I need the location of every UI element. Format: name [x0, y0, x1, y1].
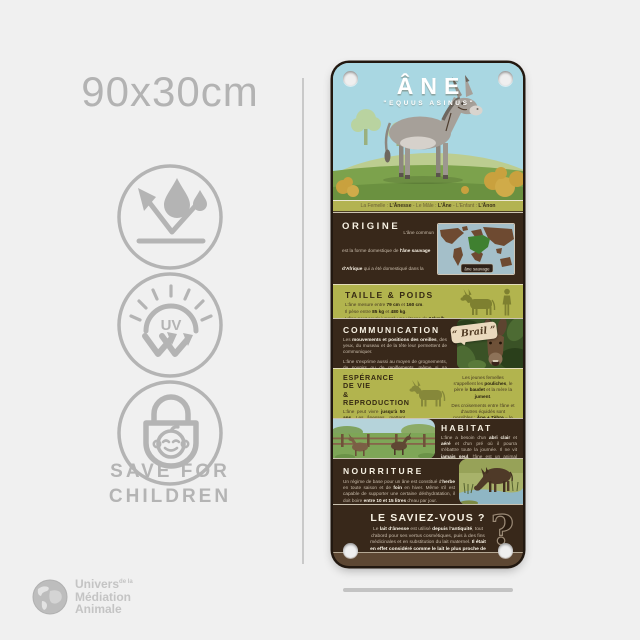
panel-title: ÂNE	[333, 73, 523, 100]
donkey-silhouette	[461, 289, 495, 315]
esperance-heading: ESPÉRANCE DE VIE & REPRODUCTION	[343, 374, 405, 407]
uv-icon-label: UV	[161, 317, 182, 334]
habitat-body: L'âne a besoin d'un abri clair et aéré e…	[441, 435, 517, 458]
size-label: 90x30cm	[40, 68, 300, 116]
esperance-right-p2: Des croisements entre l'âne et d'autres …	[451, 403, 515, 418]
header-scene: ÂNE "EQUUS ASINUS"	[333, 63, 523, 200]
panel-subtitle: "EQUUS ASINUS"	[333, 100, 523, 107]
communication-p2: L'âne s'exprime aussi au moyen de grogne…	[343, 359, 447, 368]
section-origine: ORIGINE L'âne commun est la forme domest…	[333, 212, 523, 284]
mounting-hole	[498, 543, 513, 558]
esperance-right-p1: Les jeunes femelles s'appellent les poul…	[451, 375, 515, 400]
mounting-hole	[343, 543, 358, 558]
human-silhouette	[503, 289, 512, 316]
nourriture-heading: NOURRITURE	[343, 466, 455, 476]
names-bar: La Femelle : L'Ânesse - Le Mâle : L'Âne …	[333, 200, 523, 212]
map-label: âne sauvage	[464, 266, 490, 271]
water-resistant-icon	[115, 162, 225, 272]
brand-name: Universde la Médiation Animale	[75, 578, 133, 616]
section-saviez-vous: LE SAVIEZ-VOUS ? Le lait d'ânesse est ut…	[333, 504, 523, 552]
section-habitat: HABITAT L'âne a besoin d'un abri clair e…	[333, 418, 523, 458]
world-map: âne sauvage	[437, 223, 515, 275]
bottom-underline	[343, 588, 513, 592]
save-for-children-label: SAVE FOR CHILDREN	[40, 460, 300, 509]
mounting-hole	[498, 71, 513, 86]
section-communication: COMMUNICATION Les mouvements et position…	[333, 318, 523, 368]
section-nourriture: NOURRITURE Un régime de base pour un âne…	[333, 458, 523, 504]
esperance-left-text: L'âne peut vivre jusqu'à 50 ans. Les âne…	[343, 409, 405, 418]
globe-icon	[32, 579, 68, 615]
panel-footer-band	[333, 552, 523, 566]
origine-body: L'âne commun est la forme domestique de …	[342, 230, 436, 284]
mounting-hole	[343, 71, 358, 86]
pasture-photo	[333, 419, 435, 458]
taille-heading: TAILLE & POIDS	[345, 290, 455, 300]
section-esperance-reproduction: ESPÉRANCE DE VIE & REPRODUCTION L'âne pe…	[333, 368, 523, 418]
vertical-divider	[302, 78, 304, 564]
section-taille-poids: TAILLE & POIDS L'âne mesure entre 79 cm …	[333, 284, 523, 318]
sign-panel: ÂNE "EQUUS ASINUS" La Femelle : L'Ânesse…	[333, 63, 523, 566]
brand-logo: Universde la Médiation Animale	[32, 578, 133, 616]
taille-line: Il pèse entre 85 kg et 480 kg.	[345, 309, 455, 316]
communication-heading: COMMUNICATION	[343, 325, 451, 335]
saviez-body: Le lait d'ânesse est utilisé depuis l'an…	[367, 527, 489, 552]
origine-heading: ORIGINE	[342, 221, 400, 232]
taille-line: L'âne mesure entre 79 cm et 160 cm.	[345, 302, 455, 309]
nourriture-body: Un régime de base pour un âne est consti…	[343, 479, 455, 504]
communication-p1: Les mouvements et positions des oreilles…	[343, 337, 447, 356]
uv-resistant-icon: UV	[115, 270, 225, 380]
size-comparison-silhouettes	[459, 288, 515, 316]
habitat-heading: HABITAT	[441, 423, 517, 433]
drinking-donkey-photo	[459, 459, 523, 504]
donkey-silhouette	[407, 379, 447, 407]
